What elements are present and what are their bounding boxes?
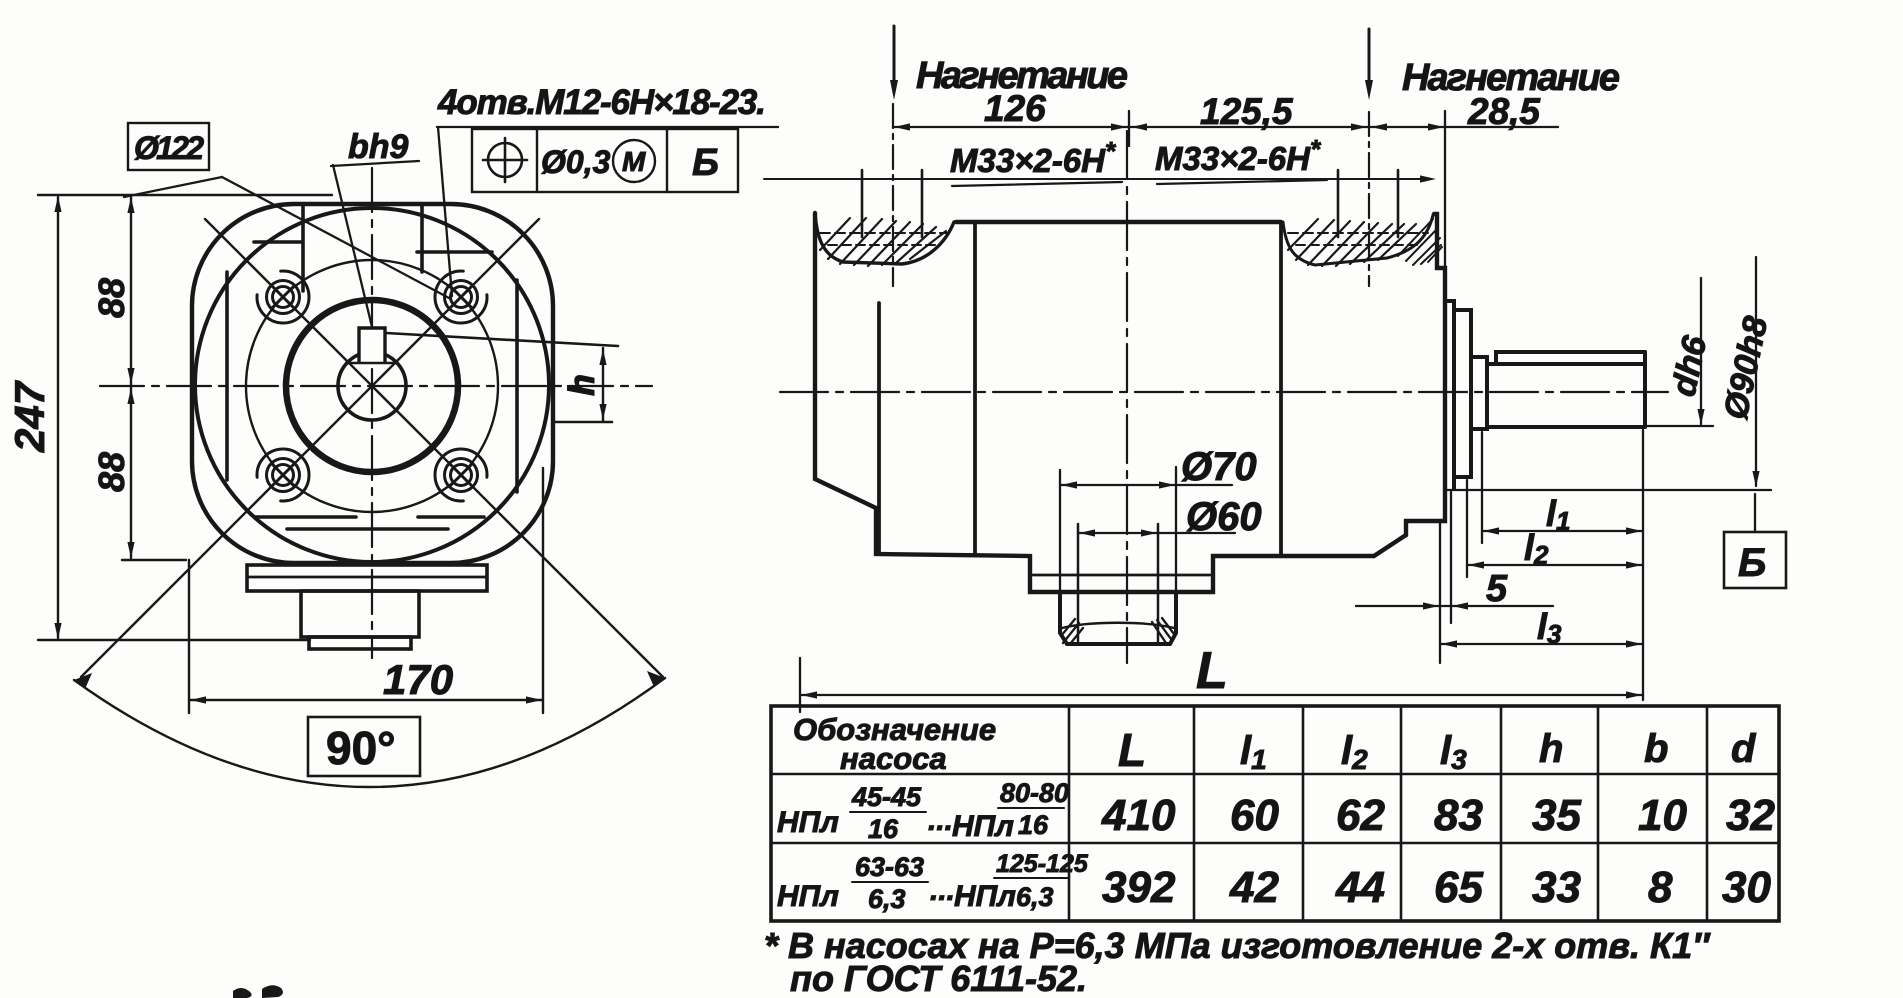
svg-text:392: 392 [1102, 863, 1176, 912]
svg-text:247: 247 [6, 380, 53, 453]
svg-text:6,3: 6,3 [868, 884, 906, 914]
svg-text:b: b [1644, 727, 1668, 771]
svg-text:125-125: 125-125 [996, 850, 1089, 878]
svg-text:М: М [622, 146, 646, 177]
svg-text:h: h [561, 374, 602, 396]
svg-text:10: 10 [1638, 791, 1687, 840]
svg-text:Б: Б [692, 142, 719, 184]
svg-text:М33×2-6Н*: М33×2-6Н* [1155, 134, 1322, 177]
svg-text:НПл: НПл [777, 880, 839, 913]
svg-text:30: 30 [1722, 863, 1771, 912]
svg-text:насоса: насоса [840, 741, 947, 776]
svg-text:125,5: 125,5 [1200, 91, 1294, 132]
svg-text:Ø70: Ø70 [1181, 445, 1257, 489]
svg-text:88: 88 [91, 452, 132, 492]
svg-text:90°: 90° [326, 722, 396, 774]
svg-text:44: 44 [1335, 863, 1385, 912]
svg-text:М33×2-6Н*: М33×2-6Н* [950, 136, 1117, 179]
svg-text:83: 83 [1434, 791, 1483, 840]
svg-text:5: 5 [1486, 568, 1508, 610]
svg-text:h: h [1539, 727, 1563, 771]
svg-text:60: 60 [1230, 791, 1279, 840]
svg-text:32: 32 [1726, 791, 1775, 840]
svg-text:Ø0,3: Ø0,3 [541, 144, 611, 180]
svg-text:410: 410 [1101, 791, 1176, 840]
svg-text:Б: Б [1738, 541, 1766, 585]
svg-text:8: 8 [1648, 863, 1673, 912]
svg-text:Нагнетание: Нагнетание [916, 55, 1128, 97]
svg-text:16: 16 [1018, 810, 1049, 840]
svg-text:42: 42 [1229, 863, 1279, 912]
svg-text:35: 35 [1532, 791, 1581, 840]
svg-text:45-45: 45-45 [851, 782, 922, 812]
svg-text:...: ... [930, 874, 955, 907]
svg-text:4отв.М12-6Н×18-23.: 4отв.М12-6Н×18-23. [437, 83, 766, 122]
svg-text:НПл: НПл [952, 810, 1014, 843]
svg-text:d: d [1731, 727, 1757, 771]
svg-text:L: L [1118, 724, 1146, 776]
svg-text:по ГОСТ 6111-52.: по ГОСТ 6111-52. [790, 958, 1087, 998]
svg-text:16: 16 [868, 814, 899, 844]
svg-text:6,3: 6,3 [1016, 882, 1054, 912]
svg-text:НПл: НПл [954, 880, 1016, 913]
svg-text:62: 62 [1336, 791, 1385, 840]
svg-text:Нагнетание: Нагнетание [1402, 57, 1620, 99]
svg-text:65: 65 [1434, 863, 1483, 912]
svg-text:63-63: 63-63 [855, 852, 924, 882]
svg-text:33: 33 [1532, 863, 1581, 912]
svg-text:bh9: bh9 [348, 128, 409, 166]
svg-text:170: 170 [383, 656, 453, 703]
svg-text:НПл: НПл [777, 806, 839, 839]
svg-text:...: ... [928, 804, 953, 837]
svg-text:80-80: 80-80 [1000, 778, 1069, 808]
svg-text:Ø60: Ø60 [1186, 495, 1262, 539]
svg-text:Ø122: Ø122 [134, 130, 204, 166]
svg-text:L: L [1196, 642, 1228, 700]
svg-text:88: 88 [91, 278, 132, 318]
